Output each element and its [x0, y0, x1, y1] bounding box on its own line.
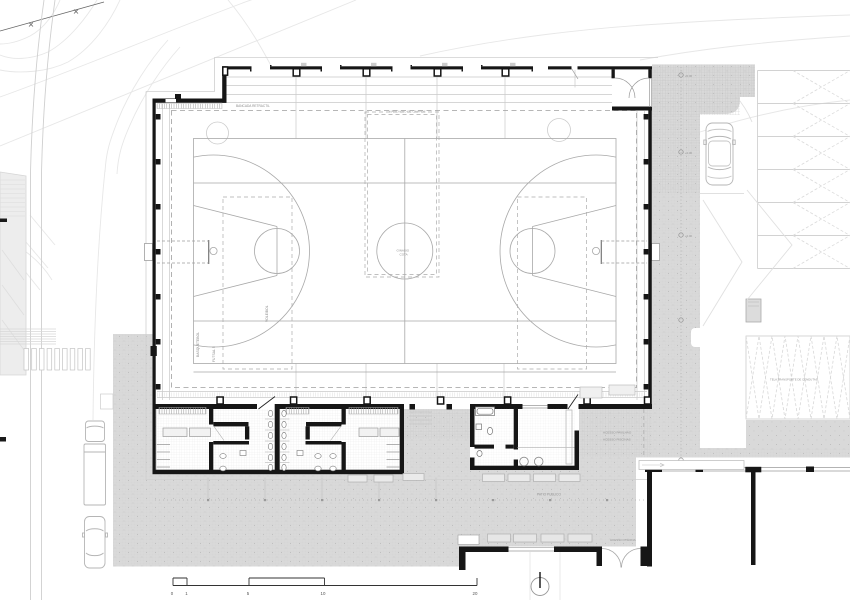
svg-text:COTA: COTA: [400, 253, 409, 257]
svg-text:GINASIO: GINASIO: [397, 249, 410, 253]
svg-text:PATIO PUBLICO: PATIO PUBLICO: [537, 493, 561, 497]
svg-text:+0.00: +0.00: [685, 151, 693, 155]
svg-text:BASQUETEBOL: BASQUETEBOL: [196, 332, 200, 357]
svg-text:BANCADA RETRACTIL: BANCADA RETRACTIL: [236, 104, 270, 108]
svg-text:ACESSO PAVILHAO: ACESSO PAVILHAO: [603, 431, 632, 435]
svg-text:ACESSO PISCINAS: ACESSO PISCINAS: [603, 438, 631, 442]
svg-text:MARCACAO DE CAMPOS: MARCACAO DE CAMPOS: [389, 110, 426, 114]
svg-text:FUTSAL 5: FUTSAL 5: [212, 346, 216, 362]
svg-text:+0.00: +0.00: [685, 74, 693, 78]
svg-text:ACESSO PISCINA: ACESSO PISCINA: [610, 538, 637, 542]
svg-text:VOLEIBOL: VOLEIBOL: [265, 305, 269, 322]
svg-text:20: 20: [473, 591, 478, 596]
svg-text:+0.00: +0.00: [685, 234, 693, 238]
svg-text:10: 10: [321, 591, 326, 596]
svg-text:TELA TRANSPORTE DE CONDUTAS: TELA TRANSPORTE DE CONDUTAS: [770, 378, 818, 382]
